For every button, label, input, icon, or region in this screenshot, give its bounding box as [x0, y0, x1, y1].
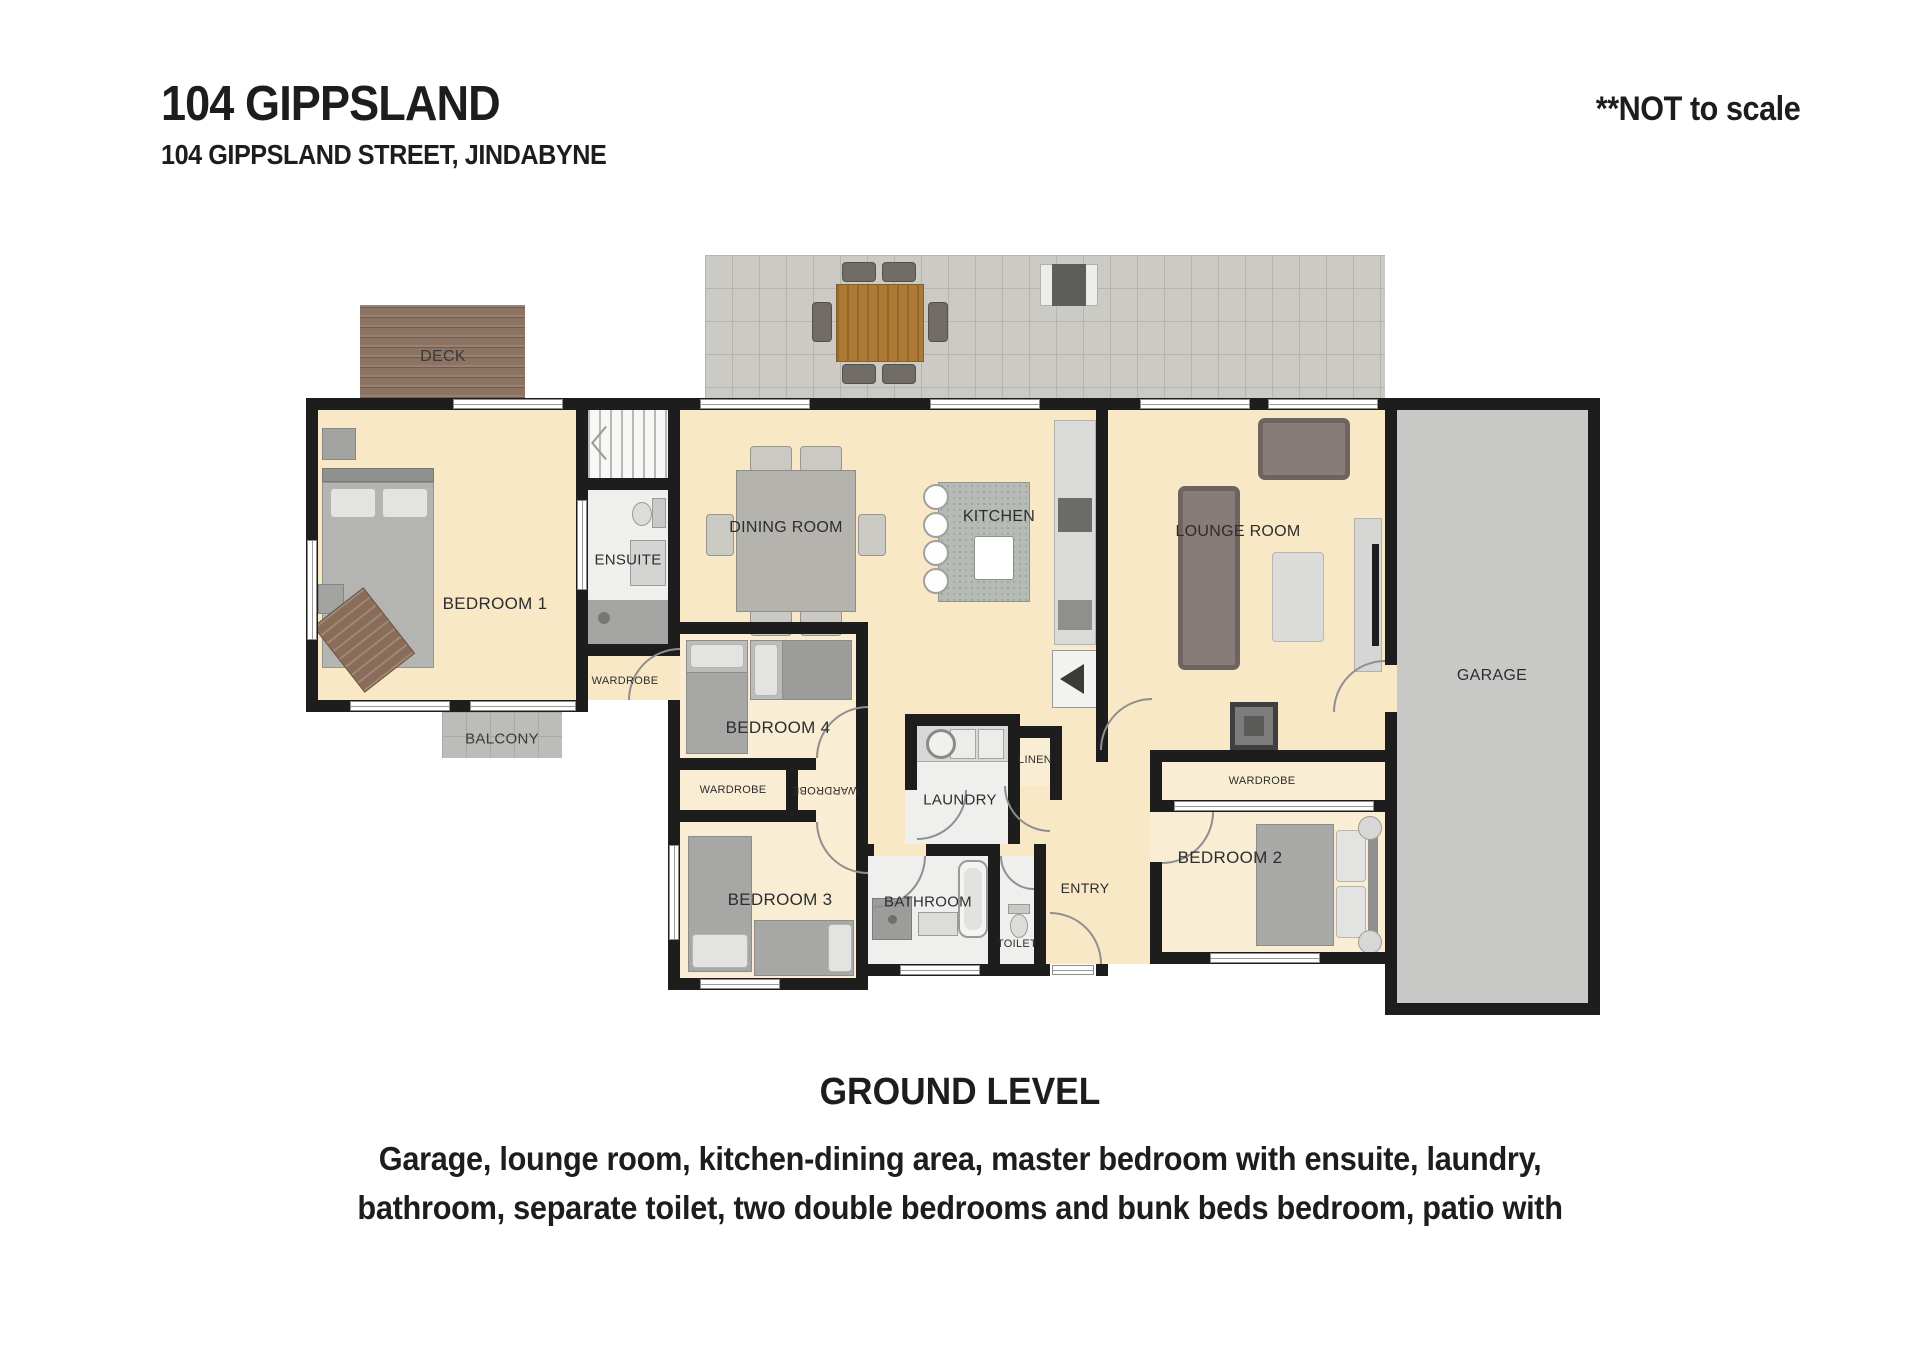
bed-headboard	[1368, 824, 1378, 946]
fireplace-inner	[1244, 716, 1264, 736]
front-door-threshold	[1052, 965, 1094, 975]
window	[307, 540, 317, 640]
window	[700, 979, 780, 989]
bedroom2-label: BEDROOM 2	[1178, 848, 1283, 868]
bedroom3-label: BEDROOM 3	[728, 890, 833, 910]
window	[700, 399, 810, 409]
pillow	[692, 934, 748, 968]
pillow	[330, 488, 376, 518]
window	[577, 500, 587, 590]
ensuite-toilet-bowl	[632, 502, 652, 526]
wardrobe-right-label: WARDROBE	[792, 784, 859, 796]
description-line1-text: Garage, lounge room, kitchen-dining area…	[379, 1140, 1542, 1178]
pillow	[754, 644, 778, 696]
dining-chair	[858, 514, 886, 556]
bathroom-label: BATHROOM	[884, 894, 972, 911]
bbq-hood	[1052, 264, 1086, 306]
patio-chair	[842, 364, 876, 384]
oven	[1058, 600, 1092, 630]
dining-chair	[750, 446, 792, 472]
wall	[1150, 750, 1162, 812]
wardrobe2-label: WARDROBE	[1229, 775, 1296, 787]
dining-room-label: DINING ROOM	[729, 519, 843, 537]
bar-stool	[923, 540, 949, 566]
bedside-lamp	[1358, 816, 1382, 840]
wall	[680, 810, 816, 822]
wall	[1150, 862, 1162, 964]
ensuite-toilet-tank	[652, 498, 666, 528]
toilet-tank	[1008, 904, 1030, 914]
pillow	[828, 924, 852, 972]
window	[1210, 953, 1320, 963]
shower-drain	[888, 915, 897, 924]
deck-label: DECK	[420, 348, 466, 366]
bunk-bed-lower	[686, 672, 748, 754]
ensuite-label: ENSUITE	[594, 552, 661, 569]
wall	[1385, 410, 1397, 665]
patio-chair	[812, 302, 832, 342]
door-gap	[1108, 750, 1152, 762]
pillow	[690, 644, 744, 668]
wall	[1096, 964, 1108, 976]
wall	[668, 398, 680, 650]
bedroom4-label: BEDROOM 4	[726, 718, 831, 738]
garage-floor	[1397, 410, 1588, 1003]
window	[669, 845, 679, 940]
pillow	[382, 488, 428, 518]
linen-label: LINEN	[1018, 754, 1052, 766]
dining-chair	[800, 446, 842, 472]
patio-chair	[882, 262, 916, 282]
window	[930, 399, 1040, 409]
wardrobe-sliding-door	[1174, 801, 1374, 811]
wardrobe-left-label: WARDROBE	[700, 784, 767, 796]
page-subtitle: 104 GIPPSLAND STREET, JINDABYNE	[161, 139, 606, 171]
wall	[856, 622, 868, 978]
bar-stool	[923, 568, 949, 594]
bedside-table	[322, 428, 356, 460]
patio-chair	[928, 302, 948, 342]
entry-label: ENTRY	[1061, 880, 1110, 896]
laundry-label: LAUNDRY	[923, 792, 997, 809]
fridge-door-icon	[1060, 664, 1084, 694]
bed-headboard	[322, 468, 434, 482]
bed-duvet	[1256, 824, 1334, 946]
window	[350, 701, 450, 711]
patio-chair	[842, 262, 876, 282]
wall	[680, 758, 816, 770]
bathroom-vanity	[918, 912, 958, 936]
stove	[1058, 498, 1092, 532]
door-gap	[1150, 812, 1162, 862]
wall	[905, 714, 917, 790]
dining-table	[736, 470, 856, 612]
door-gap	[905, 790, 917, 844]
outdoor-table	[836, 284, 924, 362]
wall	[1152, 750, 1385, 762]
bar-stool	[923, 512, 949, 538]
bedside-lamp	[1358, 930, 1382, 954]
bar-stool	[923, 484, 949, 510]
kitchen-sink	[974, 536, 1014, 580]
door-gap	[1385, 665, 1397, 712]
wall	[1008, 714, 1020, 844]
window	[1140, 399, 1250, 409]
window	[900, 965, 980, 975]
bunk-bed-upper	[782, 640, 852, 700]
wall	[1096, 410, 1108, 750]
wall	[576, 478, 680, 490]
description-line: bathroom, separate toilet, two double be…	[0, 1189, 1920, 1227]
patio-chair	[882, 364, 916, 384]
wall	[1385, 1003, 1600, 1015]
corridor-floor	[868, 714, 905, 844]
sofa-double	[1178, 486, 1240, 670]
pillow	[1336, 886, 1366, 938]
description-line2-text: bathroom, separate toilet, two double be…	[357, 1189, 1562, 1227]
toilet-label: TOILET	[997, 938, 1037, 950]
balcony-label: BALCONY	[465, 731, 539, 748]
sliding-door	[470, 701, 576, 711]
level-title: GROUND LEVEL	[0, 1071, 1920, 1114]
coffee-table	[1272, 552, 1324, 642]
wardrobe1-label: WARDROBE	[592, 675, 659, 687]
wall	[1588, 398, 1600, 1015]
page-title: 104 GIPPSLAND	[161, 76, 500, 132]
pillow	[1336, 830, 1366, 882]
level-title-text: GROUND LEVEL	[820, 1071, 1101, 1114]
garage-label: GARAGE	[1457, 667, 1527, 685]
tv	[1372, 544, 1379, 646]
dryer	[978, 729, 1004, 759]
description-line: Garage, lounge room, kitchen-dining area…	[0, 1140, 1920, 1178]
wall	[680, 622, 868, 634]
window	[453, 399, 563, 409]
window	[1268, 399, 1378, 409]
kitchen-label: KITCHEN	[963, 508, 1035, 526]
wall	[926, 844, 1000, 856]
not-to-scale-note: **NOT to scale	[1595, 90, 1800, 129]
laundry-sink	[926, 729, 956, 759]
shower-head-icon	[598, 612, 610, 624]
wall	[905, 714, 1020, 726]
floorplan-page: 104 GIPPSLAND 104 GIPPSLAND STREET, JIND…	[0, 0, 1920, 1364]
door-gap	[1000, 844, 1034, 856]
wall	[1096, 750, 1108, 762]
wall	[1385, 712, 1397, 1015]
bedroom1-label: BEDROOM 1	[443, 594, 548, 614]
toilet-bowl	[1010, 914, 1028, 938]
stairs	[588, 410, 668, 478]
door-gap	[874, 844, 926, 856]
sofa-two-seat	[1258, 418, 1350, 480]
lounge-room-label: LOUNGE ROOM	[1175, 523, 1300, 541]
